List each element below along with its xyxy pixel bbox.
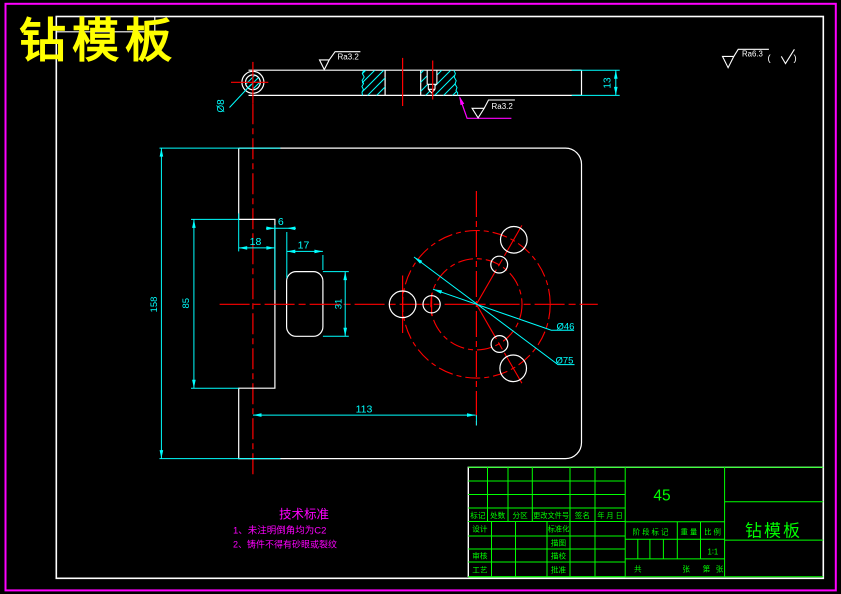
svg-text:比 例: 比 例 [704,528,721,537]
svg-text:113: 113 [356,403,373,415]
svg-text:Ra3.2: Ra3.2 [492,102,514,111]
svg-text:更改文件号: 更改文件号 [533,511,569,520]
svg-text:17: 17 [298,239,310,251]
svg-text:签名: 签名 [575,510,590,520]
svg-text:共: 共 [634,565,642,574]
svg-text:描图: 描图 [551,538,566,548]
svg-text:标准化: 标准化 [548,525,570,534]
svg-text:85: 85 [181,298,192,309]
svg-text:阶 段 标 记: 阶 段 标 记 [633,528,669,537]
svg-text:Ø46: Ø46 [557,321,575,332]
svg-text:批准: 批准 [551,565,567,575]
svg-text:Ra3.2: Ra3.2 [338,53,360,62]
svg-text:处数: 处数 [490,510,506,520]
svg-text:标记: 标记 [470,510,486,520]
svg-text:18: 18 [250,236,262,248]
svg-text:): ) [794,53,797,64]
svg-text:13: 13 [603,77,614,89]
svg-text:张: 张 [716,565,724,574]
svg-text:45: 45 [653,488,670,505]
svg-text:技术标准: 技术标准 [279,508,329,522]
svg-text:Ra6.3: Ra6.3 [742,50,763,59]
svg-text:工艺: 工艺 [472,566,488,575]
svg-text:2、铸件不得有砂眼或裂纹: 2、铸件不得有砂眼或裂纹 [233,539,337,550]
svg-text:1∶1: 1∶1 [708,548,719,557]
svg-text:第: 第 [703,564,711,574]
svg-text:张: 张 [682,565,690,574]
svg-text:Ø75: Ø75 [556,356,574,367]
svg-text:158: 158 [149,297,160,313]
svg-text:分区: 分区 [513,511,529,520]
svg-text:审核: 审核 [472,551,488,561]
svg-text:6: 6 [278,216,284,228]
svg-text:年 月 日: 年 月 日 [597,511,623,520]
svg-text:钻模板: 钻模板 [745,522,802,541]
svg-text:31: 31 [333,299,344,310]
svg-text:1、未注明倒角均为C2: 1、未注明倒角均为C2 [233,525,326,537]
svg-text:重 量: 重 量 [680,528,697,537]
svg-text:Ø8: Ø8 [216,99,227,113]
svg-text:描校: 描校 [551,551,567,561]
svg-text:设计: 设计 [472,524,488,534]
svg-text:钻模板: 钻模板 [19,14,178,67]
